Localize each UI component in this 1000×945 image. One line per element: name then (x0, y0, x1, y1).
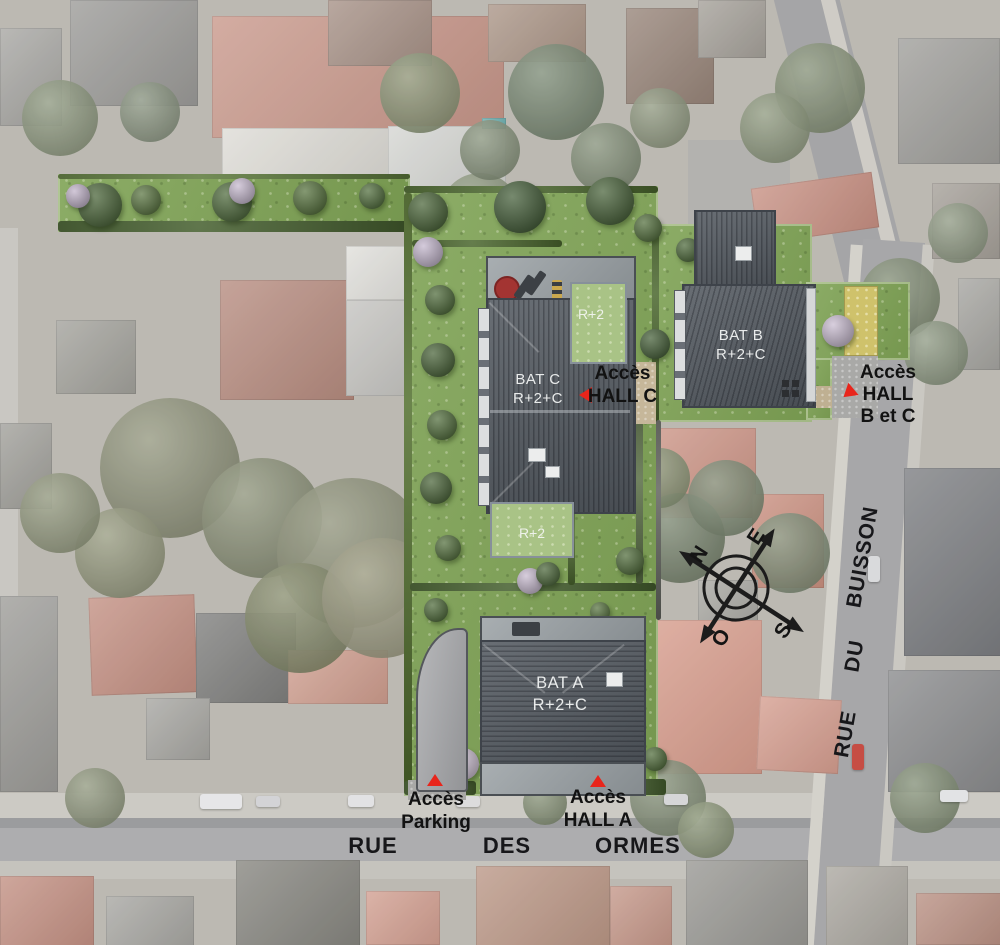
access-hall-bc-label: Accès HALL B et C (838, 362, 938, 428)
patio-tile (782, 380, 789, 387)
tree (678, 802, 734, 858)
green-roof-south-label: R+2 (507, 525, 557, 541)
house-roof (56, 320, 136, 394)
access-parking-line2: Parking (391, 811, 481, 834)
bat-c-floors: R+2+C (488, 389, 588, 408)
access-hall-bc-line2: HALL (838, 384, 938, 406)
tree (630, 88, 690, 148)
tree (460, 120, 520, 180)
house-roof (366, 891, 440, 945)
site-tree (822, 315, 854, 347)
site-tree (634, 214, 662, 242)
house-roof (0, 876, 94, 945)
site-tree (494, 181, 546, 233)
house-roof (88, 594, 197, 696)
patio-tile (782, 390, 789, 397)
parked-car (940, 790, 968, 802)
bat-b-balconies (674, 290, 686, 400)
house-roof (610, 886, 672, 945)
house-roof (106, 896, 194, 945)
table-icon (512, 622, 540, 636)
house-roof (476, 866, 610, 945)
bat-b-label: BAT B R+2+C (691, 326, 791, 364)
house-roof (0, 596, 58, 792)
site-tree (66, 184, 90, 208)
access-hall-a-line1: Accès (553, 786, 643, 809)
tree (65, 768, 125, 828)
site-tree (640, 329, 670, 359)
site-tree (413, 237, 443, 267)
street-ormes-word-des: DES (477, 833, 537, 859)
skylight (545, 466, 560, 478)
house-roof (756, 696, 842, 774)
site-tree (427, 410, 457, 440)
site-tree (424, 598, 448, 622)
street-ormes-word-rue: RUE (340, 833, 406, 859)
site-tree (425, 285, 455, 315)
bat-b-east-terrace (806, 288, 816, 402)
house-roof (898, 38, 1000, 164)
bat-a-floors: R+2+C (505, 694, 615, 716)
house-roof (904, 468, 1000, 656)
patio-tile (792, 390, 799, 397)
site-tree (421, 343, 455, 377)
site-tree (408, 192, 448, 232)
house-roof (686, 860, 808, 945)
hedge (404, 193, 412, 793)
site-tree (435, 535, 461, 561)
access-hall-c-line1: Accès (575, 362, 670, 385)
tree (22, 80, 98, 156)
house-roof (698, 0, 766, 58)
access-hall-bc-line3: B et C (838, 406, 938, 428)
house-roof (826, 866, 908, 945)
parked-car (664, 794, 688, 805)
hedge (58, 174, 410, 179)
house-roof (236, 860, 360, 945)
bat-c-green-roof-north (570, 282, 627, 364)
site-tree (229, 178, 255, 204)
parked-car (200, 794, 242, 809)
tree (120, 82, 180, 142)
access-parking-line1: Accès (391, 788, 481, 811)
site-tree (536, 562, 560, 586)
access-hall-a-label: Accès HALL A (553, 786, 643, 832)
access-hall-c-label: Accès HALL C (575, 362, 670, 408)
tree (380, 53, 460, 133)
parked-car (256, 796, 280, 807)
house-roof (220, 280, 354, 400)
roof-step-line (488, 410, 630, 413)
house-roof (916, 893, 1000, 945)
bat-c-label: BAT C R+2+C (488, 370, 588, 408)
skylight (735, 246, 752, 261)
access-hall-bc-line1: Accès (838, 362, 938, 384)
bat-a-label: BAT A R+2+C (505, 672, 615, 716)
access-parking-marker (427, 774, 443, 786)
skylight (528, 448, 546, 462)
parked-car (348, 795, 374, 807)
bat-b-floors: R+2+C (691, 345, 791, 364)
site-tree (643, 747, 667, 771)
patio-tile (792, 380, 799, 387)
compass-rose: N E S O (650, 500, 822, 676)
site-tree (616, 547, 644, 575)
site-tree (586, 177, 634, 225)
road (0, 228, 18, 598)
site-tree (131, 185, 161, 215)
site-plan-aerial-view: BAT C R+2+C BAT B R+2+C BAT A R+2+C R+2 … (0, 0, 1000, 945)
access-parking-label: Accès Parking (391, 788, 481, 834)
site-tree (420, 472, 452, 504)
bat-c-name: BAT C (488, 370, 588, 389)
bat-b-name: BAT B (691, 326, 791, 345)
access-hall-a-line2: HALL A (553, 809, 643, 832)
bat-a-name: BAT A (505, 672, 615, 694)
green-roof-north-label: R+2 (566, 306, 616, 322)
tree (20, 473, 100, 553)
tree (740, 93, 810, 163)
house-roof (146, 698, 210, 760)
street-ormes-word-ormes: ORMES (595, 833, 680, 859)
access-hall-c-line2: HALL C (575, 385, 670, 408)
tree (928, 203, 988, 263)
site-tree (359, 183, 385, 209)
site-tree (293, 181, 327, 215)
